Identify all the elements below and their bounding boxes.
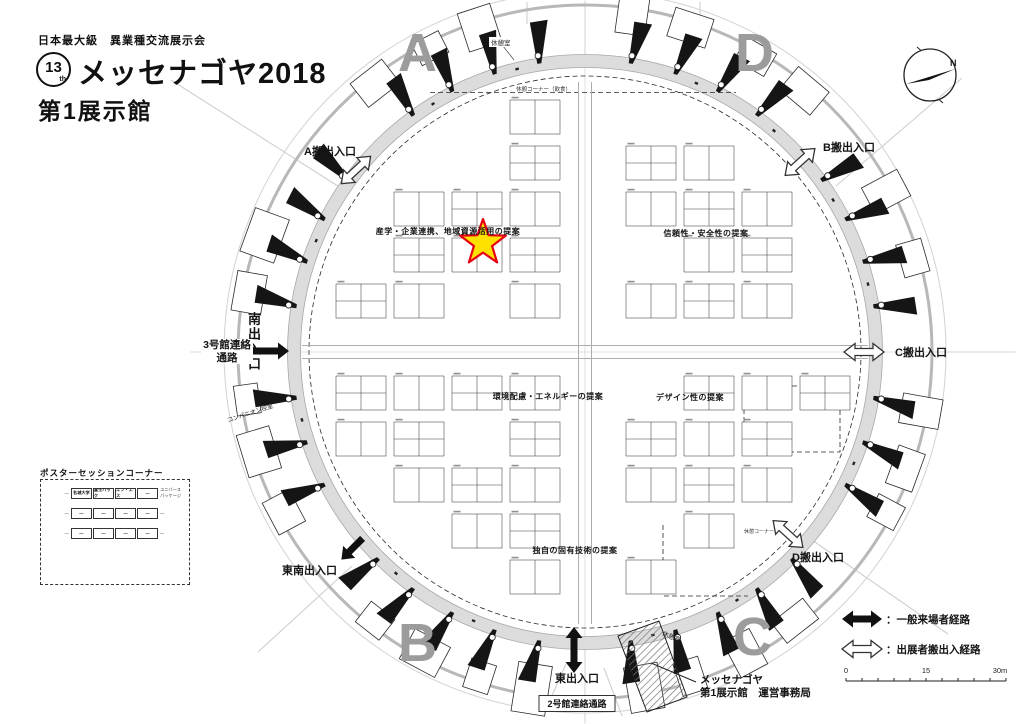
scale-mid: 15 <box>922 666 930 675</box>
floor-plan-page: 日本最大級 異業種交流展示会 13 th メッセナゴヤ2018 第1展示館 A … <box>0 0 1024 724</box>
poster-cell: — <box>93 508 114 519</box>
entrance-southeast: 東南出入口 <box>282 562 337 578</box>
office-label: メッセナゴヤ 第1展示館 運営事務局 <box>700 674 811 700</box>
entrance-a-load: A搬出入口 <box>304 143 356 159</box>
entrance-c-load: C搬出入口 <box>895 344 947 360</box>
poster-cell: 富士パック <box>93 488 114 499</box>
event-tagline: 日本最大級 異業種交流展示会 <box>38 32 206 48</box>
edition-suffix: th <box>59 76 66 83</box>
poster-left-label: — <box>45 531 70 536</box>
poster-cell: — <box>115 508 136 519</box>
compass <box>904 47 956 103</box>
poster-cell: 名城大学 <box>71 488 92 499</box>
quadrant-label-c: C <box>733 610 772 664</box>
corridor-hall3: 3号館連絡通路 <box>201 339 253 364</box>
legend-visitor: ：一般来場者経路 <box>886 612 970 627</box>
floor-plan-svg <box>0 0 1024 724</box>
event-name: メッセナゴヤ2018 <box>78 50 327 92</box>
poster-cell: — <box>137 528 158 539</box>
hall-name: 第1展示館 <box>38 92 153 126</box>
scale-bar <box>846 678 1006 681</box>
rest-corner-right: 休憩コーナー <box>744 528 774 535</box>
zone-shinrai: 信頼性・安全性の提案 <box>664 228 749 239</box>
poster-cell: — <box>71 528 92 539</box>
poster-right-label: — <box>159 511 185 516</box>
room-rest-top: 休憩室 <box>489 37 513 47</box>
office-line2: 第1展示館 運営事務局 <box>700 687 811 700</box>
office-line1: メッセナゴヤ <box>700 674 811 687</box>
quadrant-label-d: D <box>735 26 774 80</box>
poster-cell: — <box>93 528 114 539</box>
poster-cell: — <box>71 508 92 519</box>
poster-cell: — <box>137 508 158 519</box>
zone-design: デザイン性の提案 <box>656 392 724 403</box>
poster-left-label: — <box>45 491 70 496</box>
entrance-b-load: B搬出入口 <box>823 139 875 155</box>
poster-right-label: — <box>159 531 185 536</box>
poster-row: — 名城大学 富士パック エフ・エス — ユニバースパッケージ <box>45 487 185 499</box>
scale-end: 30m <box>993 666 1008 675</box>
poster-title: ポスターセッションコーナー <box>40 467 164 479</box>
poster-session-table: — 名城大学 富士パック エフ・エス — ユニバースパッケージ — — — — … <box>40 479 190 585</box>
entrance-east: 東出入口 <box>555 670 599 686</box>
edition-badge: 13 th <box>36 52 71 87</box>
zone-kankyo: 環境配慮・エネルギーの提案 <box>493 391 604 402</box>
corridor-hall2: 2号館連絡通路 <box>538 695 615 712</box>
zone-sangaku: 産学・企業連携、地域資源活用の提案 <box>376 226 521 237</box>
poster-cell: — <box>137 488 158 499</box>
rest-corner-top: 休憩コーナー（飲食） <box>516 85 571 93</box>
booth-grid <box>336 100 850 594</box>
poster-row: — — — — — — <box>45 508 185 519</box>
poster-row: — — — — — — <box>45 528 185 539</box>
compass-north-label: N <box>950 58 957 68</box>
poster-right-label: ユニバースパッケージ <box>159 487 185 499</box>
legend-exhibitor: ：出展者搬出入経路 <box>886 642 981 657</box>
edition-number: 13 <box>45 59 62 76</box>
poster-cell: エフ・エス <box>115 488 136 499</box>
zone-dokuji: 独自の固有技術の提案 <box>533 545 618 556</box>
quadrant-label-a: A <box>398 26 437 80</box>
poster-left-label: — <box>45 511 70 516</box>
poster-cell: — <box>115 528 136 539</box>
scale-start: 0 <box>844 666 848 675</box>
entrance-d-load: D搬出入口 <box>792 549 844 565</box>
quadrant-label-b: B <box>398 616 437 670</box>
